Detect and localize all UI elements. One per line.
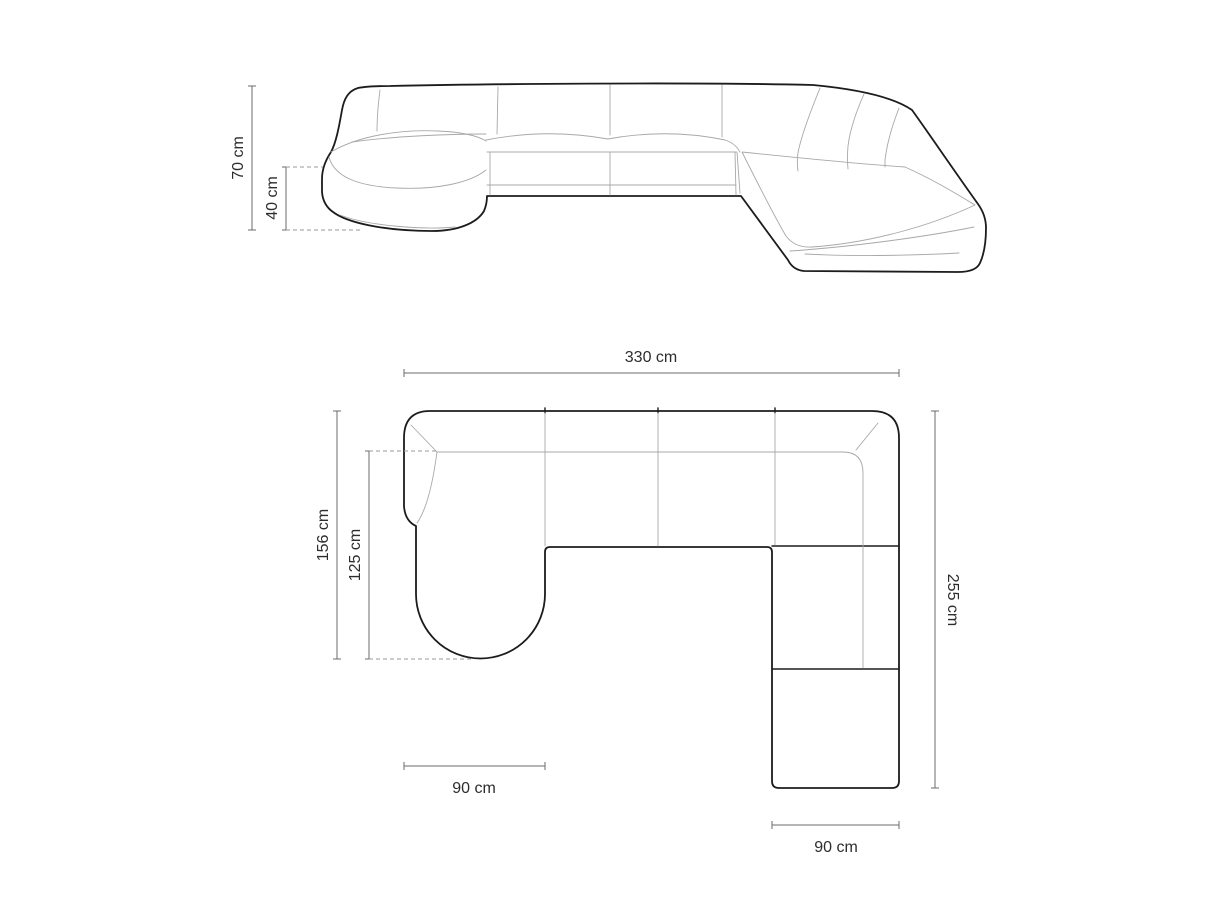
dim-label-total-height: 70 cm (230, 136, 247, 180)
sofa-dimension-diagram-page: 70 cm 40 cm (0, 0, 1214, 911)
dim-label-chaise-length: 125 cm (347, 529, 364, 581)
dim-total-width: 330 cm (404, 349, 899, 377)
dim-ottoman-width: 90 cm (772, 821, 899, 856)
dim-label-right-depth: 255 cm (944, 574, 961, 626)
dim-label-chaise-width: 90 cm (452, 780, 496, 797)
dim-label-total-width: 330 cm (625, 349, 677, 366)
top-plan-view: 330 cm 156 cm 125 cm 90 cm 2 (315, 349, 961, 856)
sofa-dimension-diagram: 70 cm 40 cm (0, 0, 1214, 911)
dim-left-depth: 156 cm (315, 411, 341, 659)
elevation-sofa-outline (322, 83, 986, 272)
dim-total-height: 70 cm (230, 86, 256, 230)
plan-sofa-outline (404, 411, 899, 788)
dim-label-left-depth: 156 cm (315, 509, 332, 561)
dim-label-ottoman-width: 90 cm (814, 839, 858, 856)
dim-seat-height: 40 cm (264, 167, 290, 230)
front-elevation-view: 70 cm 40 cm (230, 83, 986, 272)
dim-right-depth: 255 cm (931, 411, 961, 788)
dim-chaise-width: 90 cm (404, 762, 545, 797)
dim-label-seat-height: 40 cm (264, 176, 281, 220)
dim-chaise-length: 125 cm (347, 451, 373, 659)
